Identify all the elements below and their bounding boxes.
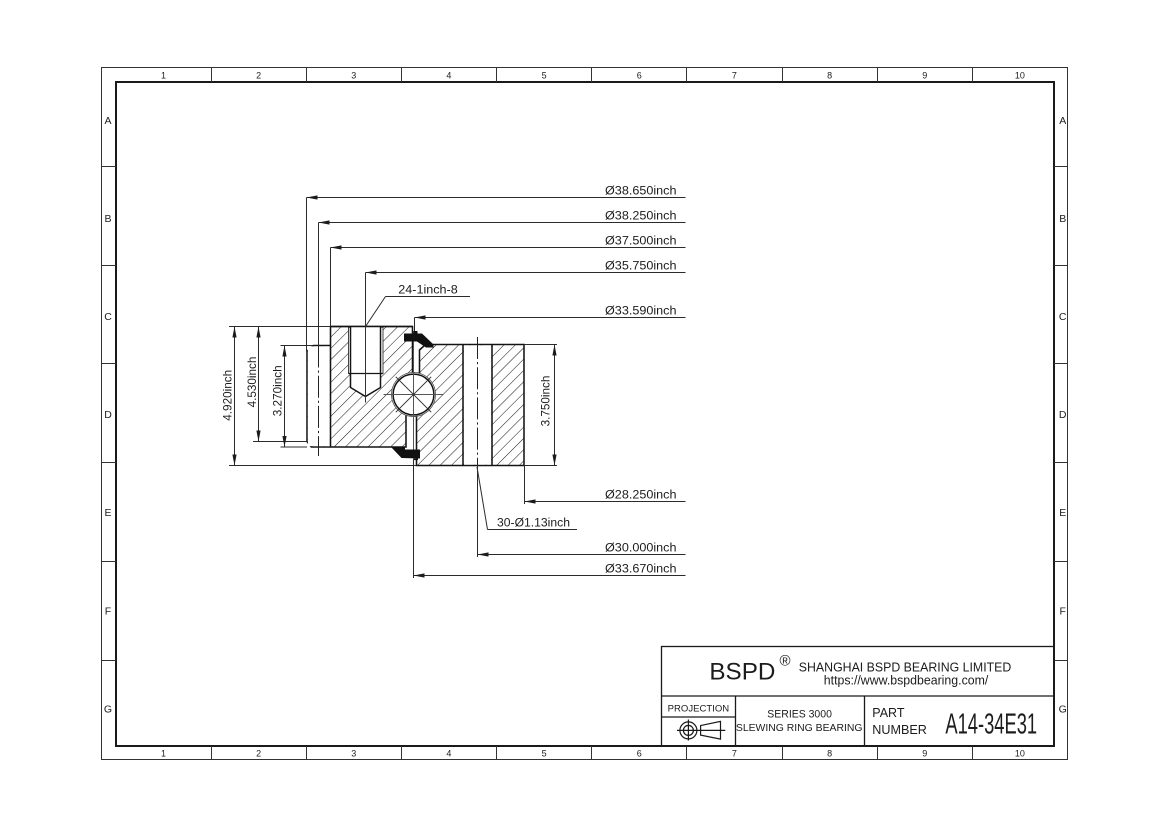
svg-text:3: 3 — [351, 71, 356, 81]
svg-text:Ø33.590inch: Ø33.590inch — [605, 303, 677, 317]
svg-text:9: 9 — [922, 71, 927, 81]
svg-text:8: 8 — [827, 71, 832, 81]
svg-text:1: 1 — [161, 71, 166, 81]
svg-text:A14-34E31: A14-34E31 — [945, 709, 1037, 741]
svg-text:D: D — [1059, 409, 1067, 421]
svg-text:https://www.bspdbearing.com/: https://www.bspdbearing.com/ — [824, 673, 989, 688]
svg-text:E: E — [104, 507, 111, 519]
svg-text:7: 7 — [732, 71, 737, 81]
svg-text:BSPD: BSPD — [709, 659, 775, 686]
svg-text:SERIES 3000: SERIES 3000 — [767, 709, 832, 721]
svg-text:3.270inch: 3.270inch — [271, 365, 284, 416]
svg-text:30-Ø1.13inch: 30-Ø1.13inch — [497, 515, 570, 529]
svg-text:A: A — [104, 115, 111, 127]
svg-text:Ø38.250inch: Ø38.250inch — [605, 208, 677, 222]
svg-text:10: 10 — [1015, 71, 1025, 81]
svg-text:Ø28.250inch: Ø28.250inch — [605, 487, 677, 501]
svg-text:B: B — [1059, 213, 1066, 225]
svg-text:SLEWING RING BEARING: SLEWING RING BEARING — [736, 723, 863, 734]
svg-text:4.920inch: 4.920inch — [222, 370, 235, 421]
svg-text:5: 5 — [542, 71, 547, 81]
svg-text:Ø30.000inch: Ø30.000inch — [605, 540, 677, 554]
svg-text:A: A — [1059, 115, 1066, 127]
svg-text:4.530inch: 4.530inch — [246, 357, 259, 408]
svg-text:D: D — [104, 409, 112, 421]
svg-text:6: 6 — [637, 71, 642, 81]
svg-text:2: 2 — [256, 71, 261, 81]
svg-text:E: E — [1059, 507, 1066, 519]
svg-text:3: 3 — [351, 748, 356, 758]
svg-text:5: 5 — [542, 748, 547, 758]
svg-text:G: G — [1059, 703, 1067, 715]
svg-text:4: 4 — [446, 71, 451, 81]
svg-text:B: B — [104, 213, 111, 225]
svg-text:Ø33.670inch: Ø33.670inch — [605, 561, 677, 575]
svg-text:6: 6 — [637, 748, 642, 758]
svg-text:7: 7 — [732, 748, 737, 758]
svg-text:F: F — [1059, 605, 1065, 617]
svg-text:9: 9 — [922, 748, 927, 758]
svg-text:Ø38.650inch: Ø38.650inch — [605, 183, 677, 197]
svg-text:4: 4 — [446, 748, 451, 758]
svg-text:PART: PART — [872, 706, 905, 720]
svg-text:PROJECTION: PROJECTION — [668, 703, 730, 714]
svg-text:8: 8 — [827, 748, 832, 758]
svg-text:C: C — [1059, 311, 1067, 323]
svg-text:3.750inch: 3.750inch — [540, 376, 553, 427]
svg-text:G: G — [104, 703, 112, 715]
svg-text:Ø35.750inch: Ø35.750inch — [605, 258, 677, 272]
svg-text:10: 10 — [1015, 748, 1025, 758]
svg-text:2: 2 — [256, 748, 261, 758]
svg-text:F: F — [105, 605, 111, 617]
svg-text:NUMBER: NUMBER — [872, 723, 927, 737]
svg-text:24-1inch-8: 24-1inch-8 — [398, 282, 458, 296]
svg-text:1: 1 — [161, 748, 166, 758]
svg-text:®: ® — [780, 653, 791, 670]
svg-text:C: C — [104, 311, 112, 323]
svg-text:Ø37.500inch: Ø37.500inch — [605, 233, 677, 247]
